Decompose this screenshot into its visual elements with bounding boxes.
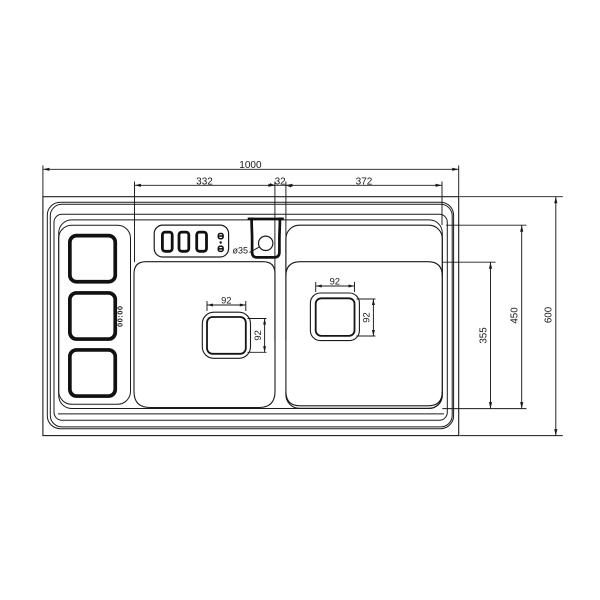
svg-text:372: 372	[356, 176, 373, 187]
svg-text:332: 332	[196, 176, 213, 187]
svg-text:92: 92	[221, 294, 231, 305]
svg-text:450: 450	[509, 307, 520, 324]
svg-text:355: 355	[478, 327, 489, 344]
svg-text:ø35: ø35	[233, 246, 249, 256]
svg-text:00:00: 00:00	[116, 306, 125, 327]
svg-text:32: 32	[275, 176, 287, 187]
svg-text:1000: 1000	[239, 160, 262, 171]
svg-text:600: 600	[544, 306, 555, 323]
svg-text:92: 92	[330, 275, 340, 286]
svg-text:92: 92	[360, 312, 371, 322]
svg-text:92: 92	[252, 330, 263, 340]
